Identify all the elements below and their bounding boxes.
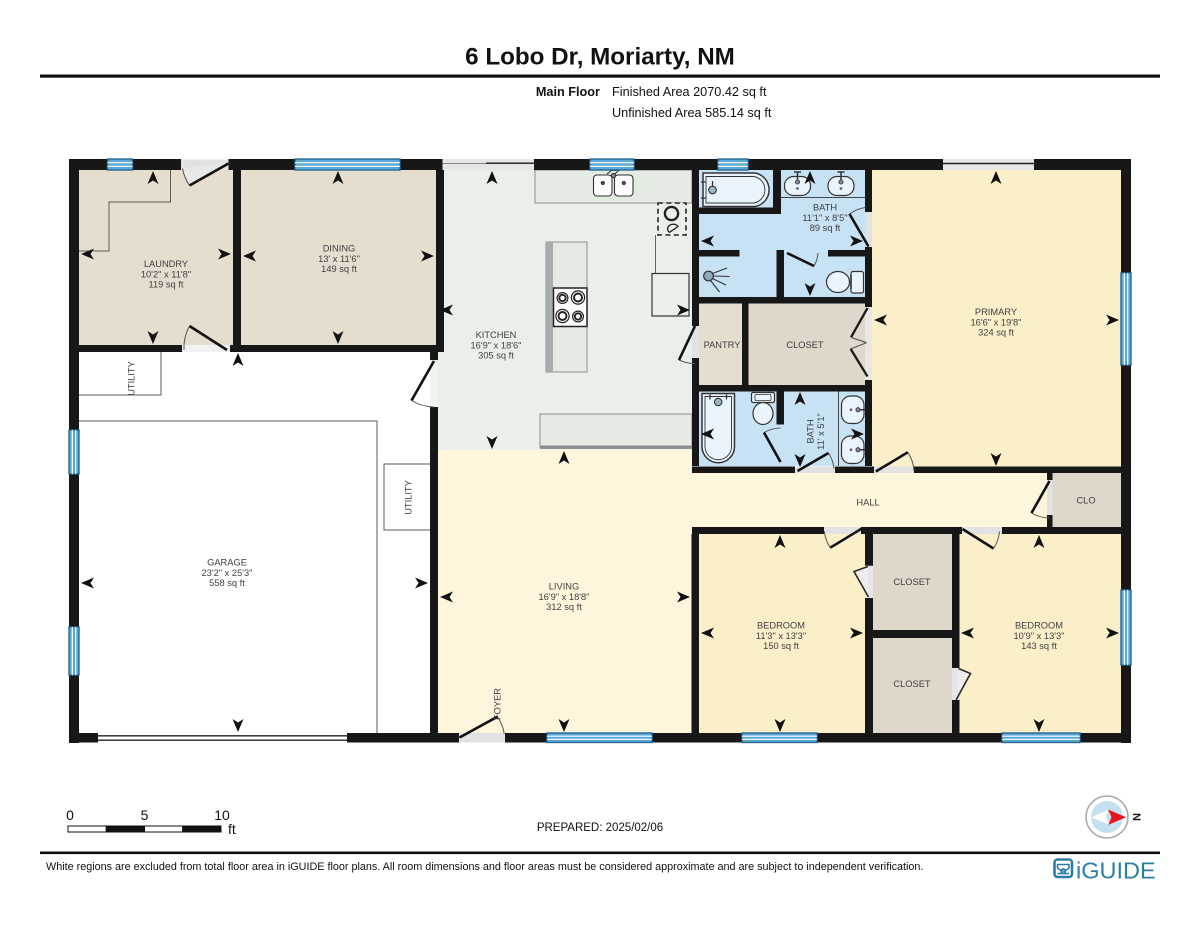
svg-text:Finished Area 2070.42 sq ft: Finished Area 2070.42 sq ft (612, 85, 767, 99)
svg-text:GARAGE: GARAGE (207, 558, 247, 568)
svg-text:PANTRY: PANTRY (704, 340, 741, 350)
svg-text:Main Floor: Main Floor (536, 85, 600, 99)
svg-text:LIVING: LIVING (549, 582, 579, 592)
svg-text:iGUIDE: iGUIDE (1076, 858, 1156, 884)
svg-text:143 sq ft: 143 sq ft (1021, 641, 1057, 651)
svg-text:KITCHEN: KITCHEN (476, 330, 517, 340)
svg-text:0: 0 (66, 807, 74, 823)
svg-text:BEDROOM: BEDROOM (757, 621, 805, 631)
svg-text:N: N (1130, 813, 1142, 821)
svg-text:HALL: HALL (856, 498, 879, 508)
svg-text:312 sq ft: 312 sq ft (546, 602, 582, 612)
svg-text:White regions are excluded fro: White regions are excluded from total fl… (46, 861, 923, 873)
svg-text:13' x 11'6": 13' x 11'6" (318, 254, 360, 264)
svg-text:DINING: DINING (323, 244, 356, 254)
svg-text:305 sq ft: 305 sq ft (478, 351, 514, 361)
svg-text:CLOSET: CLOSET (893, 679, 931, 689)
svg-text:ft: ft (228, 821, 236, 837)
svg-text:PREPARED: 2025/02/06: PREPARED: 2025/02/06 (537, 822, 663, 834)
svg-text:119 sq ft: 119 sq ft (149, 280, 184, 290)
svg-text:558 sq ft: 558 sq ft (209, 578, 245, 588)
svg-text:150 sq ft: 150 sq ft (763, 641, 799, 651)
svg-text:11'1" x 8'5": 11'1" x 8'5" (802, 213, 847, 223)
svg-text:5: 5 (141, 807, 149, 823)
svg-text:6 Lobo Dr, Moriarty, NM: 6 Lobo Dr, Moriarty, NM (465, 44, 735, 71)
svg-text:149 sq ft: 149 sq ft (321, 264, 357, 274)
svg-text:16'9" x 18'6": 16'9" x 18'6" (471, 340, 522, 350)
svg-text:16'9" x 18'8": 16'9" x 18'8" (539, 592, 590, 602)
svg-text:324 sq ft: 324 sq ft (978, 328, 1014, 338)
svg-text:CLOSET: CLOSET (893, 577, 931, 587)
svg-text:CLO: CLO (1076, 496, 1095, 506)
svg-text:89 sq ft: 89 sq ft (810, 223, 841, 233)
svg-text:11' x 5'1": 11' x 5'1" (816, 413, 826, 450)
svg-text:UTILITY: UTILITY (404, 480, 414, 515)
svg-text:UTILITY: UTILITY (127, 361, 137, 396)
svg-text:LAUNDRY: LAUNDRY (144, 259, 188, 269)
svg-text:BATH: BATH (813, 203, 837, 213)
svg-text:BEDROOM: BEDROOM (1015, 621, 1063, 631)
svg-text:PRIMARY: PRIMARY (975, 307, 1017, 317)
svg-text:10'9" x 13'3": 10'9" x 13'3" (1014, 631, 1065, 641)
svg-text:10'2" x 11'8": 10'2" x 11'8" (141, 269, 191, 279)
svg-text:CLOSET: CLOSET (786, 340, 824, 350)
svg-text:BATH: BATH (806, 419, 816, 443)
svg-text:23'2" x 25'3": 23'2" x 25'3" (202, 568, 253, 578)
svg-text:FOYER: FOYER (493, 688, 503, 720)
svg-text:11'3" x 13'3": 11'3" x 13'3" (756, 631, 806, 641)
svg-text:16'6" x 19'8": 16'6" x 19'8" (971, 317, 1022, 327)
svg-text:Unfinished Area 585.14 sq ft: Unfinished Area 585.14 sq ft (612, 106, 772, 120)
